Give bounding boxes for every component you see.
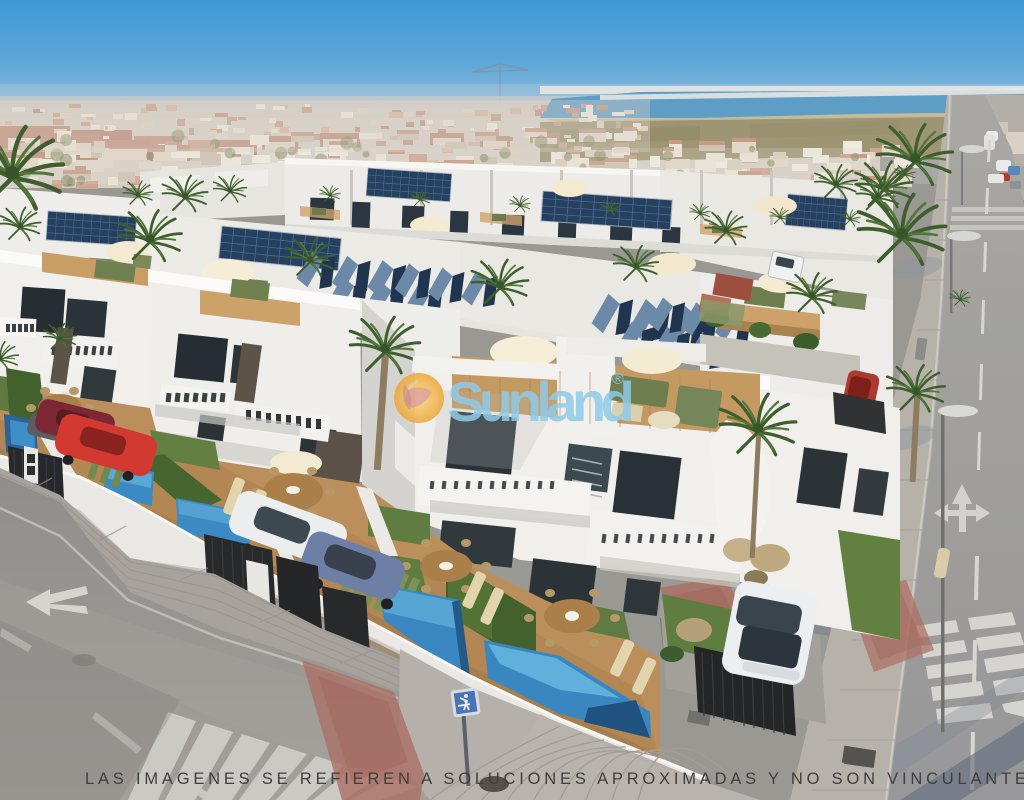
- svg-text:®: ®: [612, 371, 624, 388]
- svg-text:LAS IMAGENES SE REFIEREN A SOL: LAS IMAGENES SE REFIEREN A SOLUCIONES AP…: [85, 770, 1024, 788]
- svg-text:Sunland: Sunland: [447, 370, 632, 433]
